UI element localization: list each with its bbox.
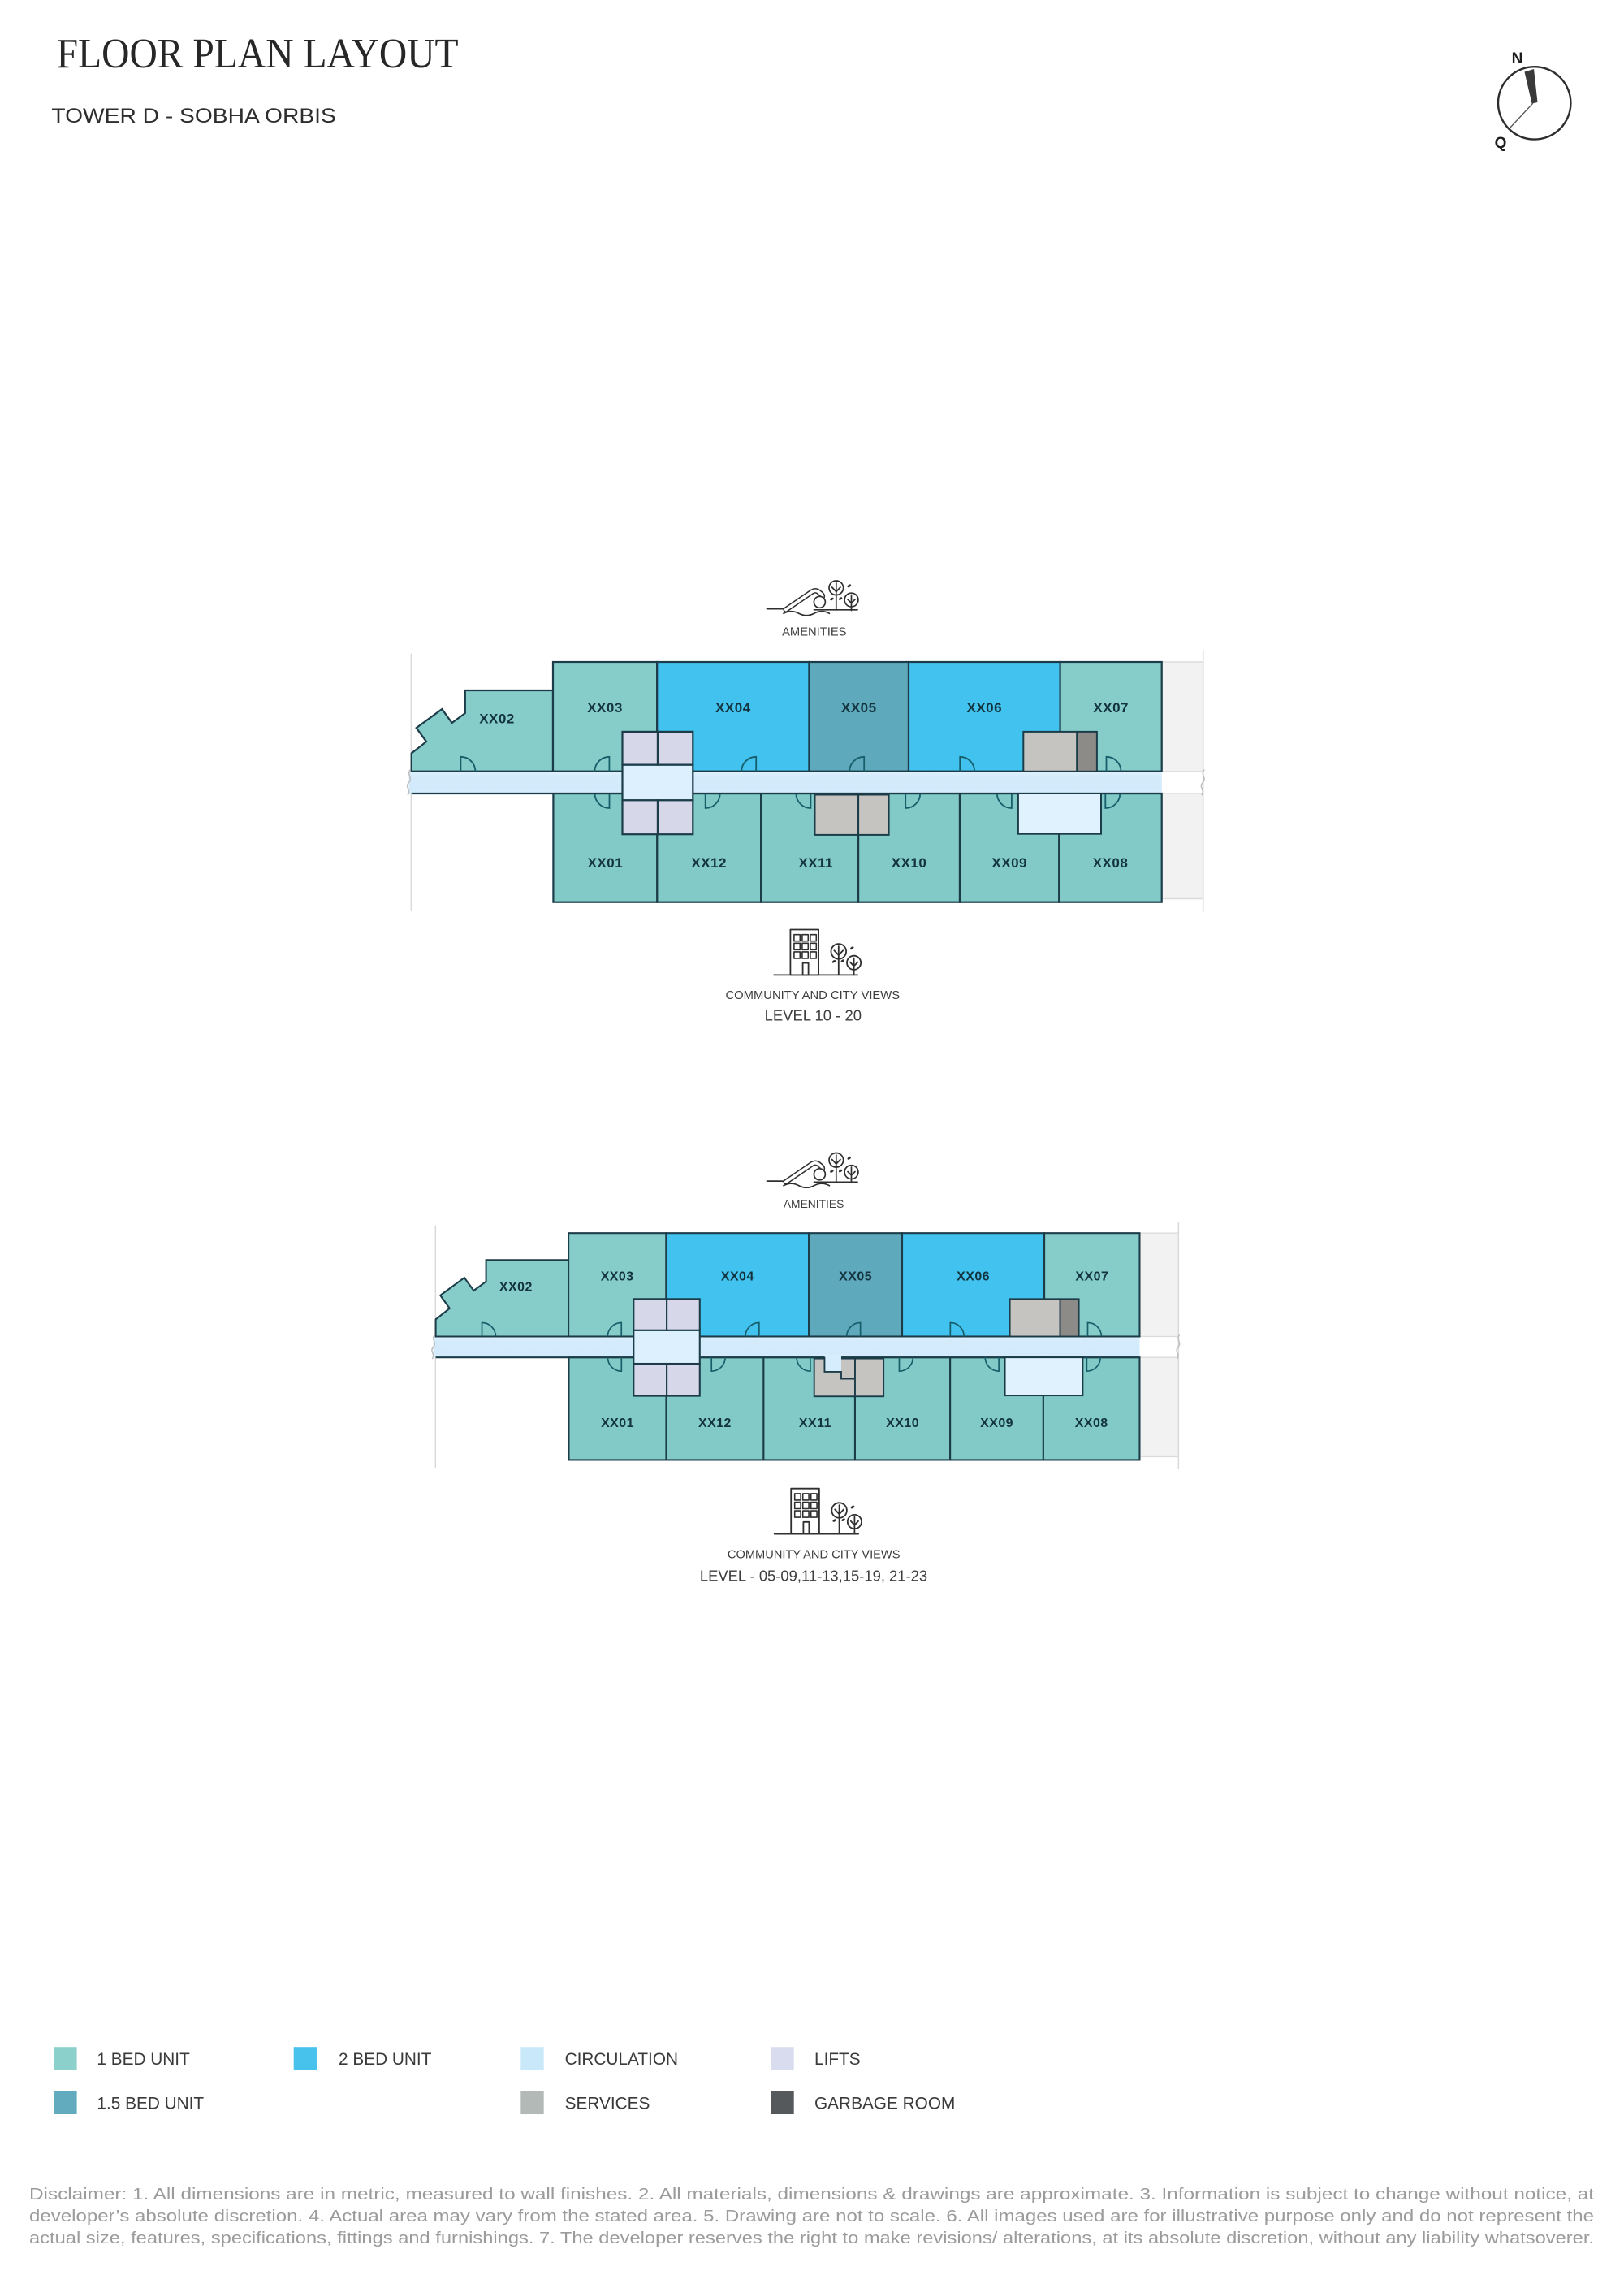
svg-text:AMENITIES: AMENITIES xyxy=(784,1197,844,1210)
svg-text:CIRCULATION: CIRCULATION xyxy=(565,2050,678,2069)
svg-text:TOWER D - SOBHA ORBIS: TOWER D - SOBHA ORBIS xyxy=(51,105,335,128)
svg-text:COMMUNITY AND CITY VIEWS: COMMUNITY AND CITY VIEWS xyxy=(726,989,901,1002)
svg-text:1.5 BED UNIT: 1.5 BED UNIT xyxy=(97,2094,204,2113)
svg-text:Disclaimer: 1. All dimensions: Disclaimer: 1. All dimensions are in met… xyxy=(29,2186,1595,2204)
svg-text:AMENITIES: AMENITIES xyxy=(782,626,847,639)
svg-text:1 BED UNIT: 1 BED UNIT xyxy=(97,2050,190,2069)
svg-text:Q: Q xyxy=(1495,135,1507,152)
svg-text:N: N xyxy=(1512,50,1523,67)
svg-text:developer’s absolute discretio: developer’s absolute discretion. 4. Actu… xyxy=(29,2208,1594,2225)
svg-text:LEVEL - 05-09,11-13,15-19, 21-: LEVEL - 05-09,11-13,15-19, 21-23 xyxy=(700,1568,927,1585)
svg-text:actual size, features, specifi: actual size, features, specifications, f… xyxy=(29,2230,1594,2247)
svg-text:LEVEL 10 - 20: LEVEL 10 - 20 xyxy=(765,1007,862,1024)
svg-text:2 BED UNIT: 2 BED UNIT xyxy=(339,2050,432,2069)
svg-text:SERVICES: SERVICES xyxy=(565,2094,650,2113)
svg-text:FLOOR PLAN LAYOUT: FLOOR PLAN LAYOUT xyxy=(57,31,459,77)
svg-text:LIFTS: LIFTS xyxy=(814,2050,861,2069)
svg-text:COMMUNITY AND CITY VIEWS: COMMUNITY AND CITY VIEWS xyxy=(728,1549,901,1562)
svg-text:GARBAGE ROOM: GARBAGE ROOM xyxy=(814,2094,955,2113)
